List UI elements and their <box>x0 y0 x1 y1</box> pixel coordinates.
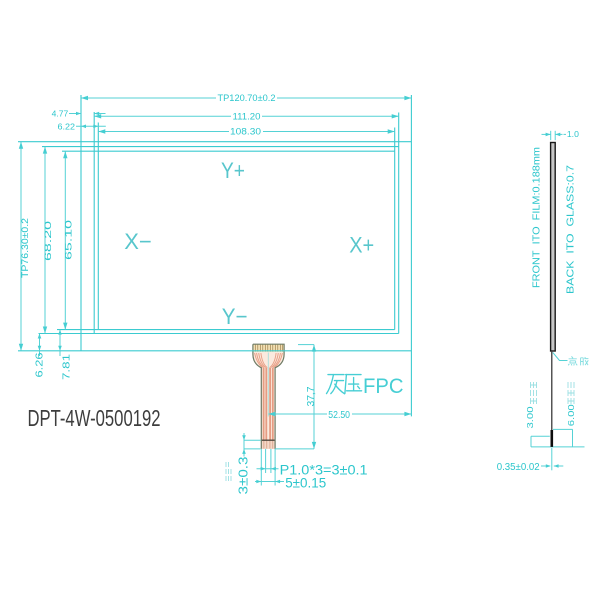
svg-text:BACK ITO GLASS:0.7: BACK ITO GLASS:0.7 <box>565 165 577 294</box>
svg-text:52.50: 52.50 <box>328 409 350 421</box>
svg-text:6.00: 6.00 <box>566 404 576 426</box>
svg-text:FRONT ITO FILM:0.188mm: FRONT ITO FILM:0.188mm <box>531 147 543 288</box>
svg-text:0.35±0.02: 0.35±0.02 <box>497 462 540 473</box>
svg-text:Y−: Y− <box>222 304 248 329</box>
svg-text:FPC: FPC <box>363 374 404 398</box>
svg-text:DPT-4W-0500192: DPT-4W-0500192 <box>28 405 161 431</box>
svg-text:TP76.30±0.2: TP76.30±0.2 <box>20 218 31 278</box>
svg-text:X−: X− <box>124 229 152 254</box>
svg-text:111.20: 111.20 <box>233 111 261 121</box>
svg-text:6.26: 6.26 <box>35 352 46 378</box>
svg-text:TP120.70±0.2: TP120.70±0.2 <box>218 93 276 103</box>
svg-text:108.30: 108.30 <box>230 127 261 137</box>
svg-text:5±0.15: 5±0.15 <box>285 476 326 491</box>
svg-text:X+: X+ <box>349 233 374 258</box>
svg-text:65.10: 65.10 <box>63 220 74 260</box>
svg-text:68.20: 68.20 <box>43 221 54 261</box>
svg-text:4.77: 4.77 <box>52 109 69 119</box>
svg-text:37,7: 37,7 <box>306 386 317 406</box>
svg-text:3.00: 3.00 <box>525 406 535 428</box>
svg-text:7.81: 7.81 <box>62 353 73 380</box>
svg-text:6.22: 6.22 <box>58 121 76 131</box>
svg-text:1.0: 1.0 <box>567 129 579 139</box>
svg-text:3±0.3: 3±0.3 <box>236 457 251 495</box>
svg-text:Y+: Y+ <box>221 158 245 183</box>
